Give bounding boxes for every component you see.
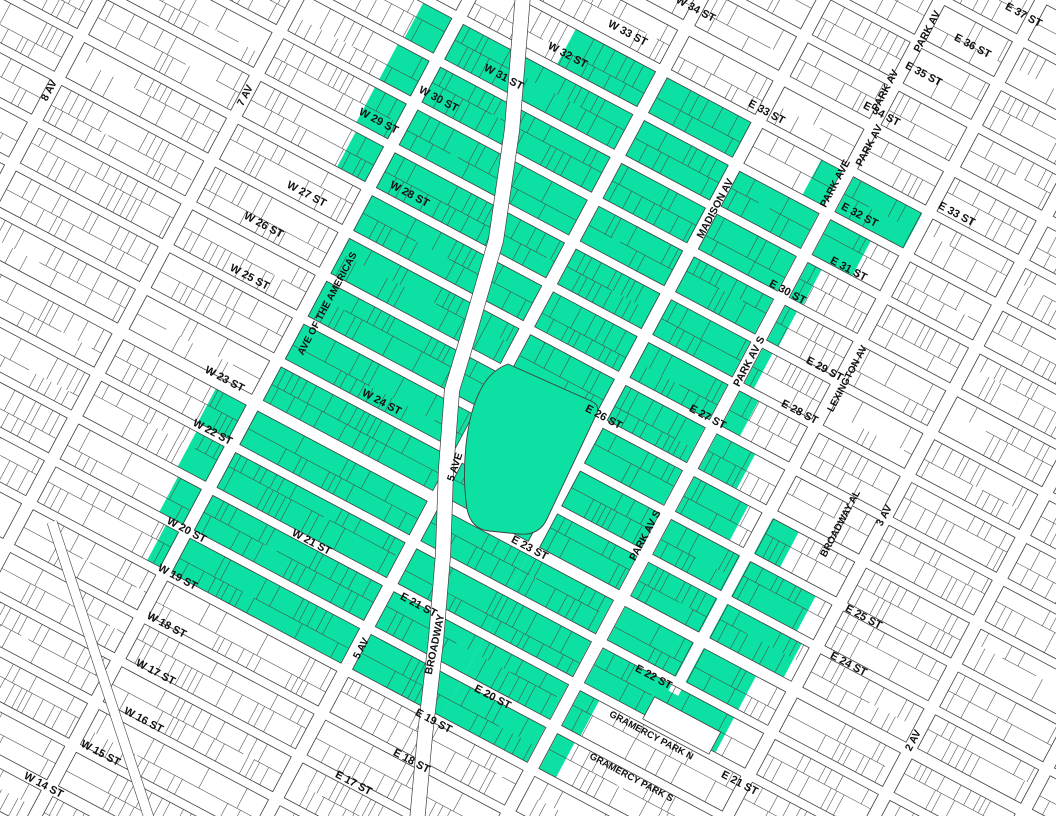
map-canvas[interactable]: W 34 STW 33 STW 32 STW 31 STW 30 STW 29 … [0, 0, 1056, 816]
district-street-map: W 34 STW 33 STW 32 STW 31 STW 30 STW 29 … [0, 0, 1056, 816]
